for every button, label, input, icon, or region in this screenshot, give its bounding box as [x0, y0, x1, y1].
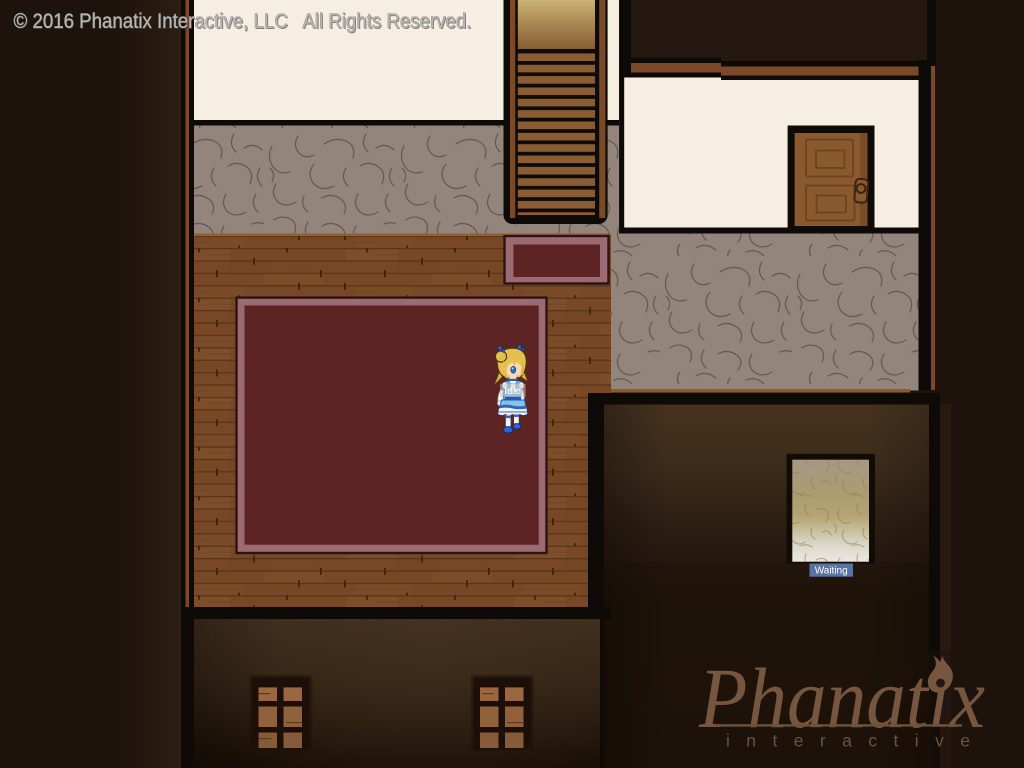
svg-text:© 2016 Phanatix Interactive, L: © 2016 Phanatix Interactive, LLC All Rig… [14, 10, 472, 33]
svg-text:Waiting: Waiting [815, 566, 848, 577]
svg-text:Idle: Idle [504, 385, 521, 397]
